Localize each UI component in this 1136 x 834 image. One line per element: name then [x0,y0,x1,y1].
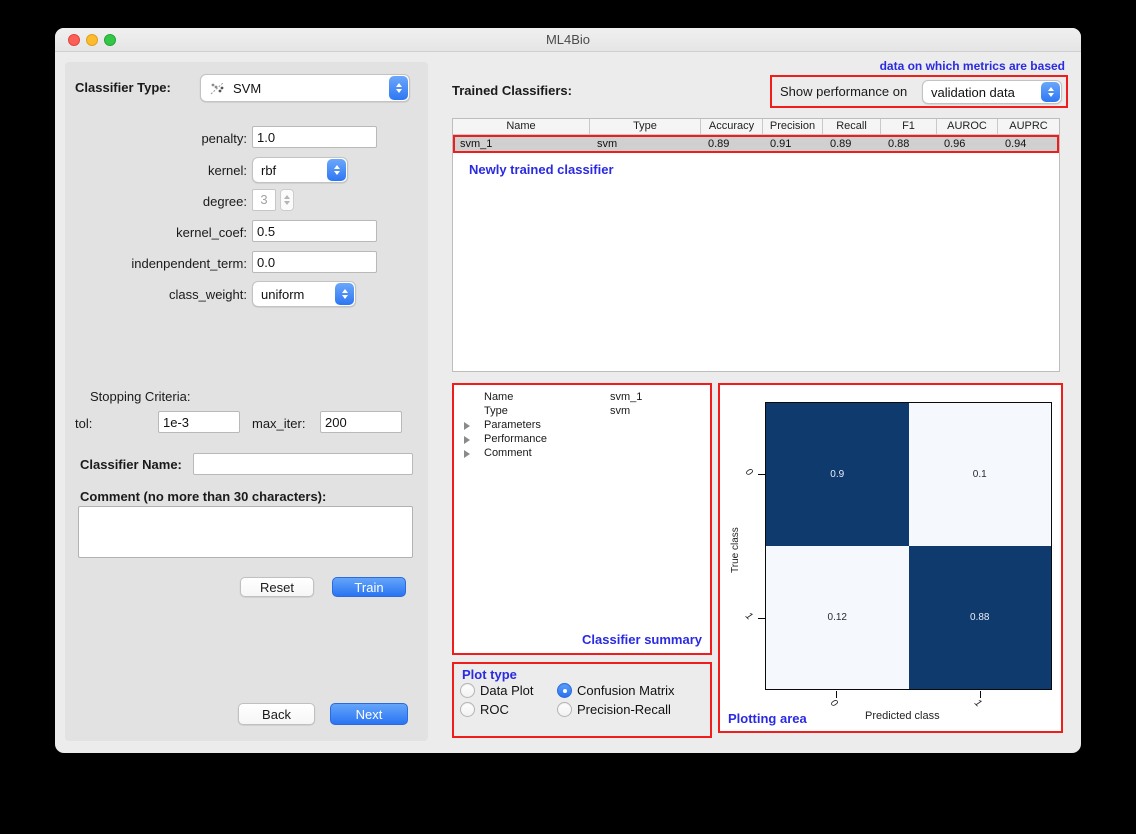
y-tick-label-0: 0 [743,467,755,479]
matrix-cell-1-0: 0.12 [766,546,909,689]
comment-label: Comment (no more than 30 characters): [80,489,326,504]
radio-data-plot-label[interactable]: Data Plot [480,683,533,698]
classifier-name-input[interactable] [193,453,413,475]
kernel-value: rbf [253,163,326,178]
back-button[interactable]: Back [238,703,315,725]
cell-auroc: 0.96 [939,137,1000,151]
x-tick-label-0: 0 [828,698,840,710]
metrics-note: data on which metrics are based [880,59,1065,73]
matrix-cell-1-1: 0.88 [909,546,1052,689]
column-header-f1[interactable]: F1 [881,119,937,134]
class-weight-dropdown[interactable]: uniform [252,281,356,307]
x-axis-label: Predicted class [865,710,940,722]
radio-data-plot[interactable] [460,683,475,698]
expander-arrow-icon[interactable] [464,450,470,458]
title-bar[interactable]: ML4Bio [55,28,1081,52]
degree-stepper-icon[interactable] [280,189,294,211]
column-header-accuracy[interactable]: Accuracy [701,119,763,134]
expander-arrow-icon[interactable] [464,436,470,444]
y-tick-label-1: 1 [743,611,755,623]
classifier-type-dropdown[interactable]: SVM [200,74,410,102]
tree-row-type: Type svm [454,405,710,419]
independent-term-input[interactable] [252,251,377,273]
column-header-recall[interactable]: Recall [823,119,881,134]
column-header-type[interactable]: Type [590,119,701,134]
independent-term-label: indenpendent_term: [87,256,247,271]
reset-button[interactable]: Reset [240,577,314,597]
plotting-area-panel: 0.9 0.1 0.12 0.88 0 1 0 1 True class Pre… [718,383,1063,733]
max-iter-label: max_iter: [252,416,305,431]
plot-type-panel: Plot type Data Plot Confusion Matrix ROC… [452,662,712,738]
radio-confusion-matrix[interactable] [557,683,572,698]
column-header-name[interactable]: Name [453,119,590,134]
chevron-up-down-icon [1041,82,1060,102]
plot-type-caption: Plot type [462,667,517,682]
classifier-type-label: Classifier Type: [75,80,171,95]
tol-label: tol: [75,416,92,431]
kernel-label: kernel: [107,163,247,178]
radio-precision-recall-label[interactable]: Precision-Recall [577,702,671,717]
comment-textarea[interactable] [78,506,413,558]
show-performance-dropdown[interactable]: validation data [922,80,1062,104]
radio-roc-label[interactable]: ROC [480,702,509,717]
kernel-coef-label: kernel_coef: [107,225,247,240]
penalty-label: penalty: [107,131,247,146]
classifier-summary-caption: Classifier summary [582,632,702,647]
cell-recall: 0.89 [825,137,883,151]
next-button[interactable]: Next [330,703,408,725]
classifier-type-value: SVM [225,81,388,96]
app-window: ML4Bio Classifier Type: SVM penalty: ker… [55,28,1081,753]
trained-classifiers-list[interactable]: Name Type Accuracy Precision Recall F1 A… [452,118,1060,372]
cell-accuracy: 0.89 [703,137,765,151]
radio-confusion-matrix-label[interactable]: Confusion Matrix [577,683,675,698]
newly-trained-note: Newly trained classifier [469,162,614,177]
trained-classifiers-label: Trained Classifiers: [452,83,572,98]
degree-label: degree: [107,194,247,209]
tol-input[interactable] [158,411,240,433]
classifier-name-label: Classifier Name: [80,457,182,472]
x-tick-label-1: 1 [972,698,984,710]
class-weight-label: class_weight: [107,287,247,302]
svm-icon [201,82,225,95]
max-iter-input[interactable] [320,411,402,433]
matrix-cell-0-0: 0.9 [766,403,909,546]
y-tick-mark [758,618,765,619]
tree-row-name: Name svm_1 [454,391,710,405]
tree-row-comment[interactable]: Comment [454,447,710,461]
kernel-dropdown[interactable]: rbf [252,157,348,183]
degree-spinbox[interactable]: 3 [252,189,276,211]
kernel-coef-input[interactable] [252,220,377,242]
tree-row-parameters[interactable]: Parameters [454,419,710,433]
train-button[interactable]: Train [332,577,406,597]
class-weight-value: uniform [253,287,334,302]
x-tick-mark [980,691,981,698]
column-header-auprc[interactable]: AUPRC [998,119,1059,134]
cell-auprc: 0.94 [1000,137,1061,151]
cell-type: svm [592,137,703,151]
show-performance-value: validation data [923,85,1040,100]
classifier-summary-panel[interactable]: Name svm_1 Type svm Parameters Performan… [452,383,712,655]
column-header-precision[interactable]: Precision [763,119,823,134]
table-header-row: Name Type Accuracy Precision Recall F1 A… [453,119,1059,135]
y-axis-label: True class [730,527,741,573]
classifier-config-panel: Classifier Type: SVM penalty: kernel: rb… [65,62,428,741]
stopping-criteria-label: Stopping Criteria: [90,389,190,404]
expander-arrow-icon[interactable] [464,422,470,430]
chevron-up-down-icon [335,283,354,305]
show-performance-label: Show performance on [780,84,907,99]
penalty-input[interactable] [252,126,377,148]
plotting-area-caption: Plotting area [728,711,807,726]
y-tick-mark [758,474,765,475]
cell-f1: 0.88 [883,137,939,151]
show-performance-annotation-box: Show performance on validation data [770,75,1068,108]
radio-roc[interactable] [460,702,475,717]
cell-precision: 0.91 [765,137,825,151]
cell-name: svm_1 [455,137,592,151]
confusion-matrix: 0.9 0.1 0.12 0.88 [765,402,1052,690]
radio-precision-recall[interactable] [557,702,572,717]
x-tick-mark [836,691,837,698]
chevron-up-down-icon [327,159,346,181]
window-title: ML4Bio [55,32,1081,47]
tree-row-performance[interactable]: Performance [454,433,710,447]
table-row-svm1[interactable]: svm_1 svm 0.89 0.91 0.89 0.88 0.96 0.94 [453,135,1059,153]
chevron-up-down-icon [389,76,408,100]
matrix-cell-0-1: 0.1 [909,403,1052,546]
column-header-auroc[interactable]: AUROC [937,119,998,134]
